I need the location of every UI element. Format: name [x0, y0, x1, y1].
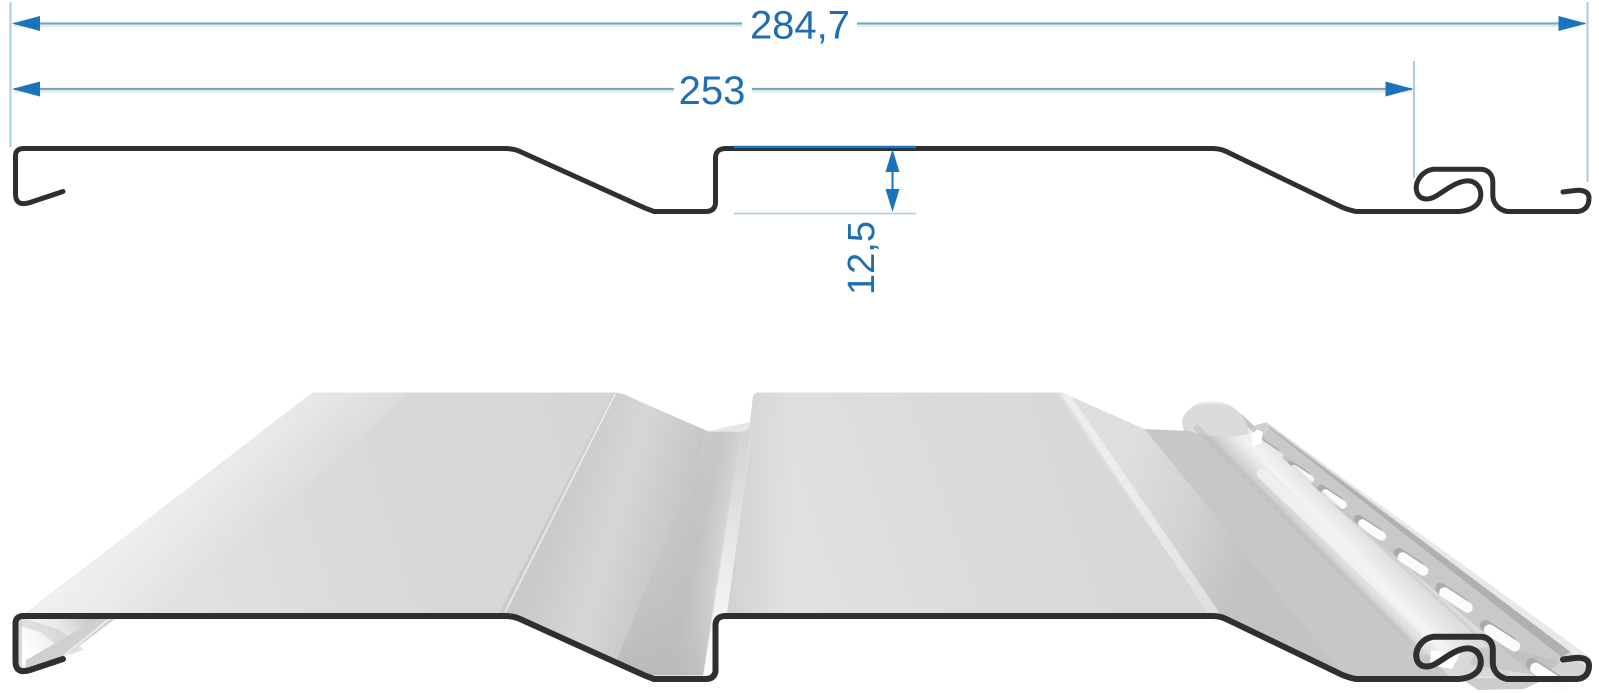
svg-text:284,7: 284,7 — [750, 4, 850, 48]
svg-text:12,5: 12,5 — [841, 221, 883, 295]
svg-text:253: 253 — [679, 69, 746, 113]
